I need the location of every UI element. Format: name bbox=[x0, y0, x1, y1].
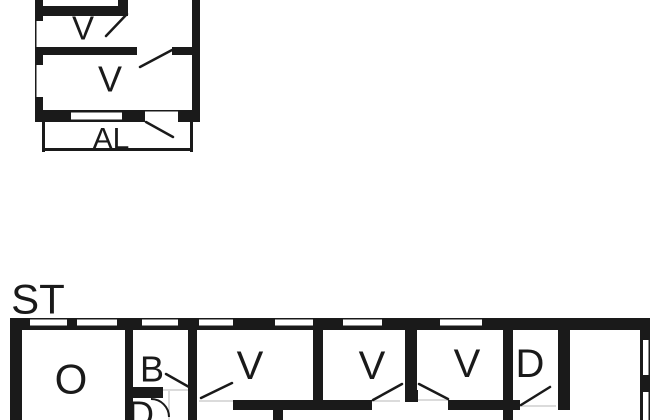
floor-plan-drawing: VVALSTOBDVVVD bbox=[0, 0, 650, 420]
window bbox=[37, 21, 44, 47]
window bbox=[142, 320, 178, 326]
wall bbox=[313, 330, 323, 410]
window bbox=[199, 320, 233, 326]
window bbox=[77, 320, 117, 326]
room-label-b: B bbox=[140, 349, 164, 390]
wall bbox=[172, 47, 192, 55]
wall bbox=[10, 318, 22, 420]
wall bbox=[273, 410, 283, 420]
wall bbox=[405, 390, 418, 402]
room-label-v-upper-small: V bbox=[72, 10, 94, 47]
window bbox=[643, 340, 649, 375]
room-label-v-upper-large: V bbox=[98, 59, 122, 100]
wall bbox=[192, 0, 200, 122]
wall bbox=[188, 330, 197, 420]
window bbox=[37, 65, 44, 97]
wall bbox=[558, 330, 570, 410]
room-label-d-small: D bbox=[128, 394, 154, 420]
wall bbox=[190, 122, 193, 152]
window bbox=[643, 392, 649, 420]
room-label-v3: V bbox=[454, 342, 481, 386]
building-label-st: ST bbox=[11, 276, 65, 323]
window bbox=[71, 113, 122, 120]
window bbox=[145, 112, 178, 123]
room-label-v2: V bbox=[359, 344, 386, 388]
window bbox=[440, 320, 482, 326]
wall bbox=[233, 400, 372, 410]
window bbox=[343, 320, 382, 326]
wall bbox=[42, 122, 45, 152]
window bbox=[275, 320, 313, 326]
room-label-v1: V bbox=[237, 344, 264, 388]
room-label-al-balcony: AL bbox=[93, 123, 130, 156]
room-label-o: O bbox=[55, 356, 88, 403]
room-label-d: D bbox=[516, 342, 545, 386]
floor-plan-page: VVALSTOBDVVVD bbox=[0, 0, 650, 420]
wall bbox=[43, 47, 137, 55]
wall bbox=[35, 0, 43, 122]
wall bbox=[448, 400, 520, 410]
